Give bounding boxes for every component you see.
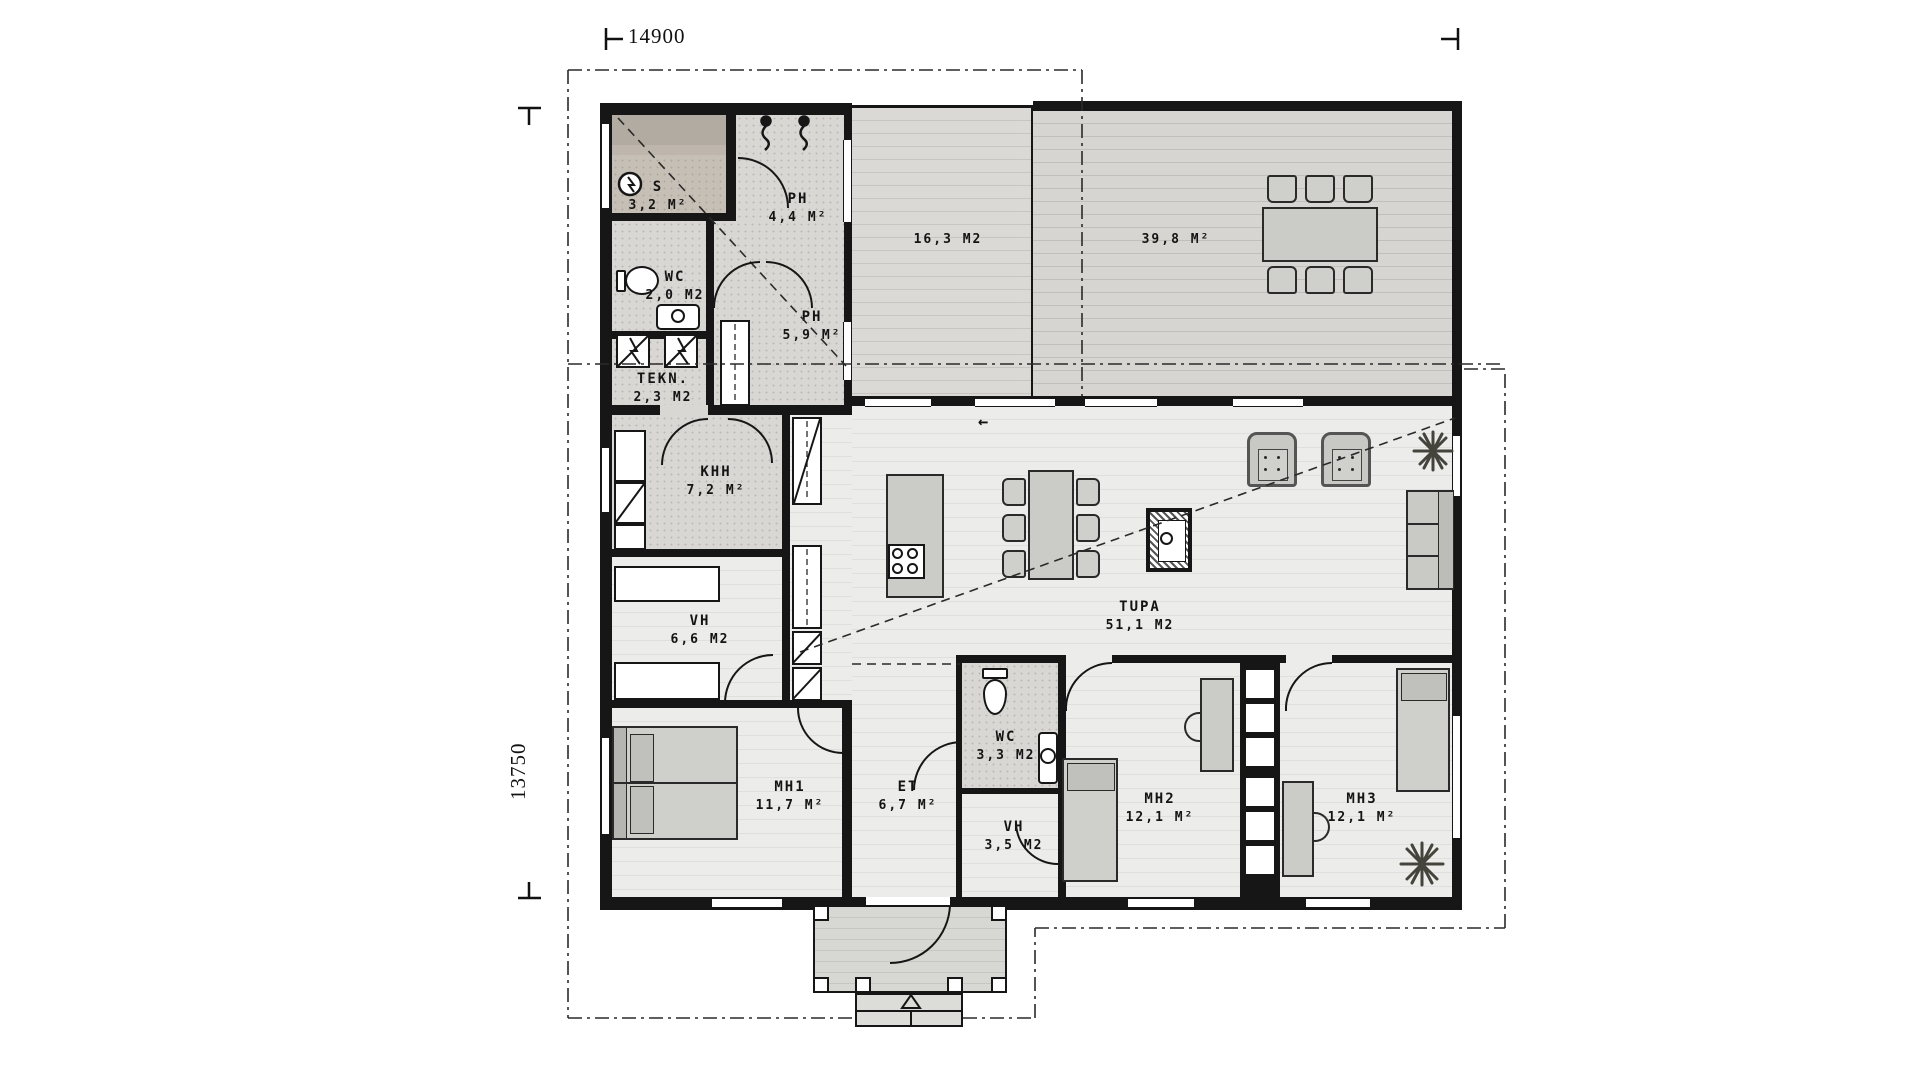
pillow bbox=[630, 734, 654, 782]
terrace1-edge bbox=[852, 105, 1033, 108]
pillow bbox=[630, 786, 654, 834]
porch-post bbox=[855, 977, 871, 993]
washer-icon bbox=[614, 482, 646, 524]
terrace-chair bbox=[1343, 266, 1373, 294]
kitchen-island bbox=[886, 474, 944, 598]
window bbox=[712, 898, 782, 908]
terrace-divider bbox=[1031, 108, 1033, 396]
room-label-khh: KHH7,2 M² bbox=[666, 463, 766, 500]
window bbox=[601, 448, 610, 512]
room-label-ph1: PH4,4 M² bbox=[748, 190, 848, 227]
room-label-tekn: TEKN.2,3 M2 bbox=[613, 370, 713, 407]
window bbox=[1452, 716, 1461, 838]
pillow bbox=[1067, 763, 1115, 791]
room-label-wc1: WC2,0 M2 bbox=[630, 268, 720, 305]
wall-khh-vh bbox=[612, 549, 782, 557]
pantry-cabinet bbox=[792, 417, 822, 505]
pillow bbox=[1401, 673, 1447, 701]
burner bbox=[907, 548, 918, 559]
mh2-door-opening bbox=[1066, 655, 1112, 663]
sliding-door-arrow-icon: ← bbox=[978, 412, 988, 432]
armchair-seat bbox=[1258, 449, 1288, 481]
cabinet bbox=[720, 320, 750, 406]
electrical-panel-icon bbox=[664, 334, 698, 368]
terrace2-label: 39,8 M² bbox=[1116, 230, 1236, 249]
double-bed bbox=[612, 726, 738, 840]
bed-center-line bbox=[614, 782, 736, 784]
toilet-tank-icon bbox=[982, 668, 1008, 679]
wall-vh-mh1 bbox=[612, 700, 850, 708]
room-label-tupa: TUPA51,1 M2 bbox=[1090, 598, 1190, 635]
terrace2-right-wall bbox=[1452, 101, 1462, 406]
chair bbox=[1076, 478, 1100, 506]
room-label-ph2: PH5,9 M² bbox=[762, 308, 862, 345]
terrace1-floor bbox=[852, 108, 1033, 396]
chair bbox=[1002, 514, 1026, 542]
dining-table bbox=[1028, 470, 1074, 580]
armchair bbox=[1321, 432, 1371, 487]
terrace2-top-wall bbox=[1033, 101, 1462, 111]
hall-cabinet bbox=[792, 545, 822, 629]
terrace-dining-table bbox=[1262, 207, 1378, 262]
terrace-chair bbox=[1305, 175, 1335, 203]
sofa bbox=[1406, 490, 1454, 590]
closet-box bbox=[1244, 776, 1276, 808]
terrace2-floor bbox=[1033, 111, 1452, 396]
armchair-seat bbox=[1332, 449, 1362, 481]
room-label-mh3: MH312,1 M² bbox=[1312, 790, 1412, 827]
dimension-width-label: 14900 bbox=[628, 24, 686, 49]
sauna-bench-step bbox=[612, 145, 726, 155]
porch-stairs bbox=[855, 993, 963, 1027]
single-bed bbox=[1396, 668, 1450, 792]
closet-box bbox=[1244, 810, 1276, 842]
sauna-bench bbox=[612, 115, 726, 145]
porch-post bbox=[813, 905, 829, 921]
porch-post bbox=[991, 977, 1007, 993]
closet-box bbox=[792, 631, 822, 665]
room-label-vh2: VH3,5 M2 bbox=[964, 818, 1064, 855]
window bbox=[1128, 898, 1194, 908]
sofa-divider bbox=[1408, 523, 1438, 525]
fireplace-door bbox=[1160, 532, 1173, 545]
closet-box bbox=[1244, 736, 1276, 768]
desk bbox=[1282, 781, 1314, 877]
sofa-back bbox=[1438, 492, 1453, 588]
room-label-et: ET6,7 M² bbox=[858, 778, 958, 815]
shelf bbox=[614, 662, 720, 700]
stair-divider bbox=[910, 1012, 912, 1025]
closet-box bbox=[792, 667, 822, 701]
wall-sauna-ph bbox=[726, 103, 736, 215]
closet-box bbox=[1244, 702, 1276, 734]
window bbox=[865, 398, 931, 407]
khh-counter bbox=[614, 524, 646, 550]
chair bbox=[1076, 550, 1100, 578]
dimension-height-label: 13750 bbox=[506, 743, 531, 801]
room-label-mh1: MH111,7 M² bbox=[740, 778, 840, 815]
sink-drain bbox=[671, 309, 685, 323]
armchair bbox=[1247, 432, 1297, 487]
window bbox=[1233, 398, 1303, 407]
sofa-divider bbox=[1408, 555, 1438, 557]
window bbox=[975, 398, 1055, 407]
wall-khh-hall bbox=[782, 415, 790, 707]
khh-counter bbox=[614, 430, 646, 482]
floor-plan: 14900 13750 16,3 M2 39,8 M² bbox=[0, 0, 1920, 1080]
room-label-wc2: WC3,3 M2 bbox=[956, 728, 1056, 765]
terrace1-label: 16,3 M2 bbox=[888, 230, 1008, 249]
window bbox=[601, 738, 610, 834]
terrace-chair bbox=[1343, 175, 1373, 203]
wall-mh1-et bbox=[842, 700, 852, 897]
room-label-vh1: VH6,6 M2 bbox=[650, 612, 750, 649]
stair-edge bbox=[857, 1010, 961, 1012]
window bbox=[1452, 436, 1461, 496]
burner bbox=[892, 548, 903, 559]
wall-bedrooms-top bbox=[956, 655, 1460, 663]
terrace-chair bbox=[1267, 266, 1297, 294]
chair bbox=[1002, 478, 1026, 506]
terrace-chair bbox=[1305, 266, 1335, 294]
porch-post bbox=[813, 977, 829, 993]
terrace-chair bbox=[1267, 175, 1297, 203]
mh3-door-opening bbox=[1286, 655, 1332, 663]
closet-box bbox=[1244, 844, 1276, 876]
closet-box bbox=[1244, 668, 1276, 700]
window bbox=[1306, 898, 1370, 908]
burner bbox=[907, 563, 918, 574]
chair bbox=[1076, 514, 1100, 542]
electrical-panel-icon bbox=[616, 334, 650, 368]
shelf bbox=[614, 566, 720, 602]
burner bbox=[892, 563, 903, 574]
window bbox=[1085, 398, 1157, 407]
room-label-mh2: MH212,1 M² bbox=[1110, 790, 1210, 827]
chair bbox=[1002, 550, 1026, 578]
fireplace bbox=[1146, 508, 1192, 572]
entrance-porch bbox=[813, 905, 1007, 993]
porch-post bbox=[991, 905, 1007, 921]
desk bbox=[1200, 678, 1234, 772]
room-label-sauna: S3,2 M² bbox=[608, 178, 708, 215]
porch-post bbox=[947, 977, 963, 993]
